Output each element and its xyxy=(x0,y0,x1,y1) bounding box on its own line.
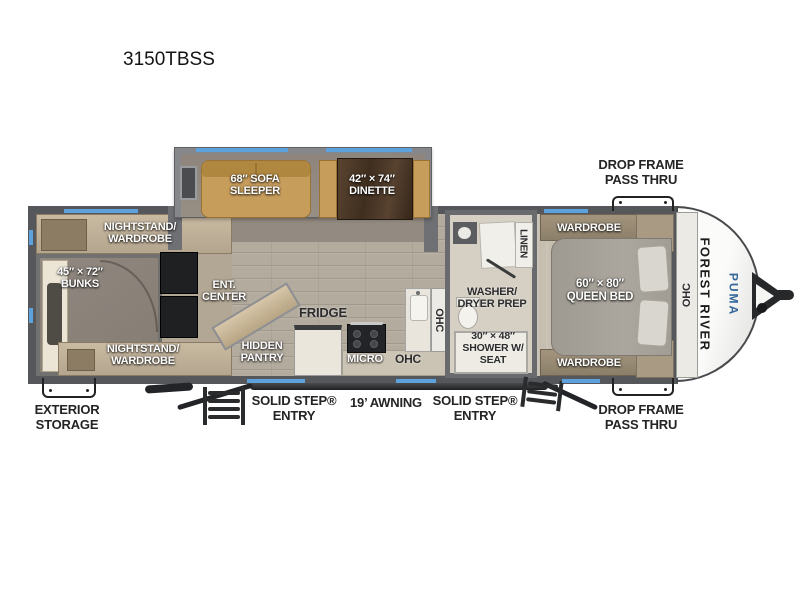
bunk-pad xyxy=(47,283,62,345)
label-entry-right: SOLID STEP® ENTRY xyxy=(432,394,518,424)
latch-dot xyxy=(49,389,52,392)
model-title: 3150TBSS xyxy=(123,49,215,71)
pass-thru-door-top xyxy=(612,196,674,211)
pass-thru-door-bottom xyxy=(612,378,674,396)
label-ohc-kitchen-upper: OHC xyxy=(433,301,445,339)
label-hidden-pantry: HIDDEN PANTRY xyxy=(222,340,302,365)
step-rung xyxy=(208,391,240,395)
burner xyxy=(353,340,361,348)
window-bottom-center xyxy=(396,379,436,383)
exterior-storage-door xyxy=(42,378,96,398)
pillow-bottom xyxy=(636,299,669,347)
window-bottom-left xyxy=(247,379,305,383)
window-dinette xyxy=(326,148,412,152)
tongue-jack xyxy=(757,303,767,313)
label-fridge: FRIDGE xyxy=(296,306,350,321)
window-bottom-bedroom xyxy=(562,379,600,383)
label-ent-center: ENT. CENTER xyxy=(195,279,253,304)
slideout-window xyxy=(180,166,197,200)
latch-dot xyxy=(664,388,667,391)
label-micro: MICRO xyxy=(341,353,389,365)
step-rung xyxy=(208,399,240,403)
latch-dot xyxy=(619,388,622,391)
puma-logo: PUMA xyxy=(728,255,741,335)
label-awning: 19’ AWNING xyxy=(340,396,432,411)
label-linen: LINEN xyxy=(517,222,528,266)
window-rear-top xyxy=(64,209,138,213)
label-queen-bed: 60″ × 80″ QUEEN BED xyxy=(550,278,650,304)
label-nightstand-bottom: NIGHTSTAND/ WARDROBE xyxy=(88,343,198,368)
label-pass-thru-top: DROP FRAME PASS THRU xyxy=(591,158,691,188)
window-bedroom-top xyxy=(544,209,588,213)
entry-steps-right xyxy=(520,377,563,412)
label-entry-left: SOLID STEP® ENTRY xyxy=(251,394,337,424)
label-shower: 30″ × 48″ SHOWER W/ SEAT xyxy=(452,331,534,366)
stove xyxy=(347,324,386,353)
kitchen-sink xyxy=(410,295,428,321)
latch-dot xyxy=(664,201,667,204)
label-ohc-bedroom: OHC xyxy=(681,275,693,315)
step-rung xyxy=(208,407,240,411)
window-rear-wall-2 xyxy=(29,308,33,323)
step-rung xyxy=(526,397,556,405)
step-rung xyxy=(208,415,240,419)
label-washer-dryer: WASHER/ DRYER PREP xyxy=(446,286,538,311)
sink-counter xyxy=(405,288,431,352)
latch-dot xyxy=(86,389,89,392)
floorplan: 3150TBSS 68″ SOFA SLEEPER 42″ × 74″ DINE… xyxy=(0,0,800,600)
burner xyxy=(353,330,361,338)
ent-center-lower xyxy=(160,296,198,338)
label-pass-thru-bottom: DROP FRAME PASS THRU xyxy=(591,403,691,433)
awning-roller xyxy=(250,383,548,390)
label-ohc-kitchen: OHC xyxy=(390,353,426,366)
step-rung xyxy=(527,389,557,397)
label-wardrobe-bottom: WARDROBE xyxy=(540,357,638,369)
washer-dryer-space xyxy=(479,221,517,269)
burner xyxy=(370,340,378,348)
bath-vanity xyxy=(453,222,477,244)
cabinet-shelf xyxy=(41,219,87,251)
label-dinette: 42″ × 74″ DINETTE xyxy=(330,173,414,198)
step-rung xyxy=(528,381,558,389)
entry-steps-left xyxy=(203,387,245,425)
label-bunks: 45″ × 72″ BUNKS xyxy=(44,266,116,291)
ent-center-upper xyxy=(160,252,198,294)
stove-handle xyxy=(350,322,383,325)
label-wardrobe-top: WARDROBE xyxy=(540,222,638,234)
latch-dot xyxy=(619,201,622,204)
burner xyxy=(370,330,378,338)
faucet xyxy=(416,291,420,295)
forest-river-logo: FOREST RIVER xyxy=(698,220,713,370)
window-sofa xyxy=(196,148,288,152)
label-nightstand-top: NIGHTSTAND/ WARDROBE xyxy=(85,221,195,246)
bath-sink xyxy=(458,227,471,239)
hitch-coupler xyxy=(778,290,794,300)
awning-arm-left-base xyxy=(145,382,193,393)
label-sofa: 68″ SOFA SLEEPER xyxy=(205,173,305,198)
label-exterior-storage: EXTERIOR STORAGE xyxy=(24,403,110,433)
window-rear-wall-1 xyxy=(29,230,33,245)
dinette-bench-right xyxy=(413,160,430,218)
